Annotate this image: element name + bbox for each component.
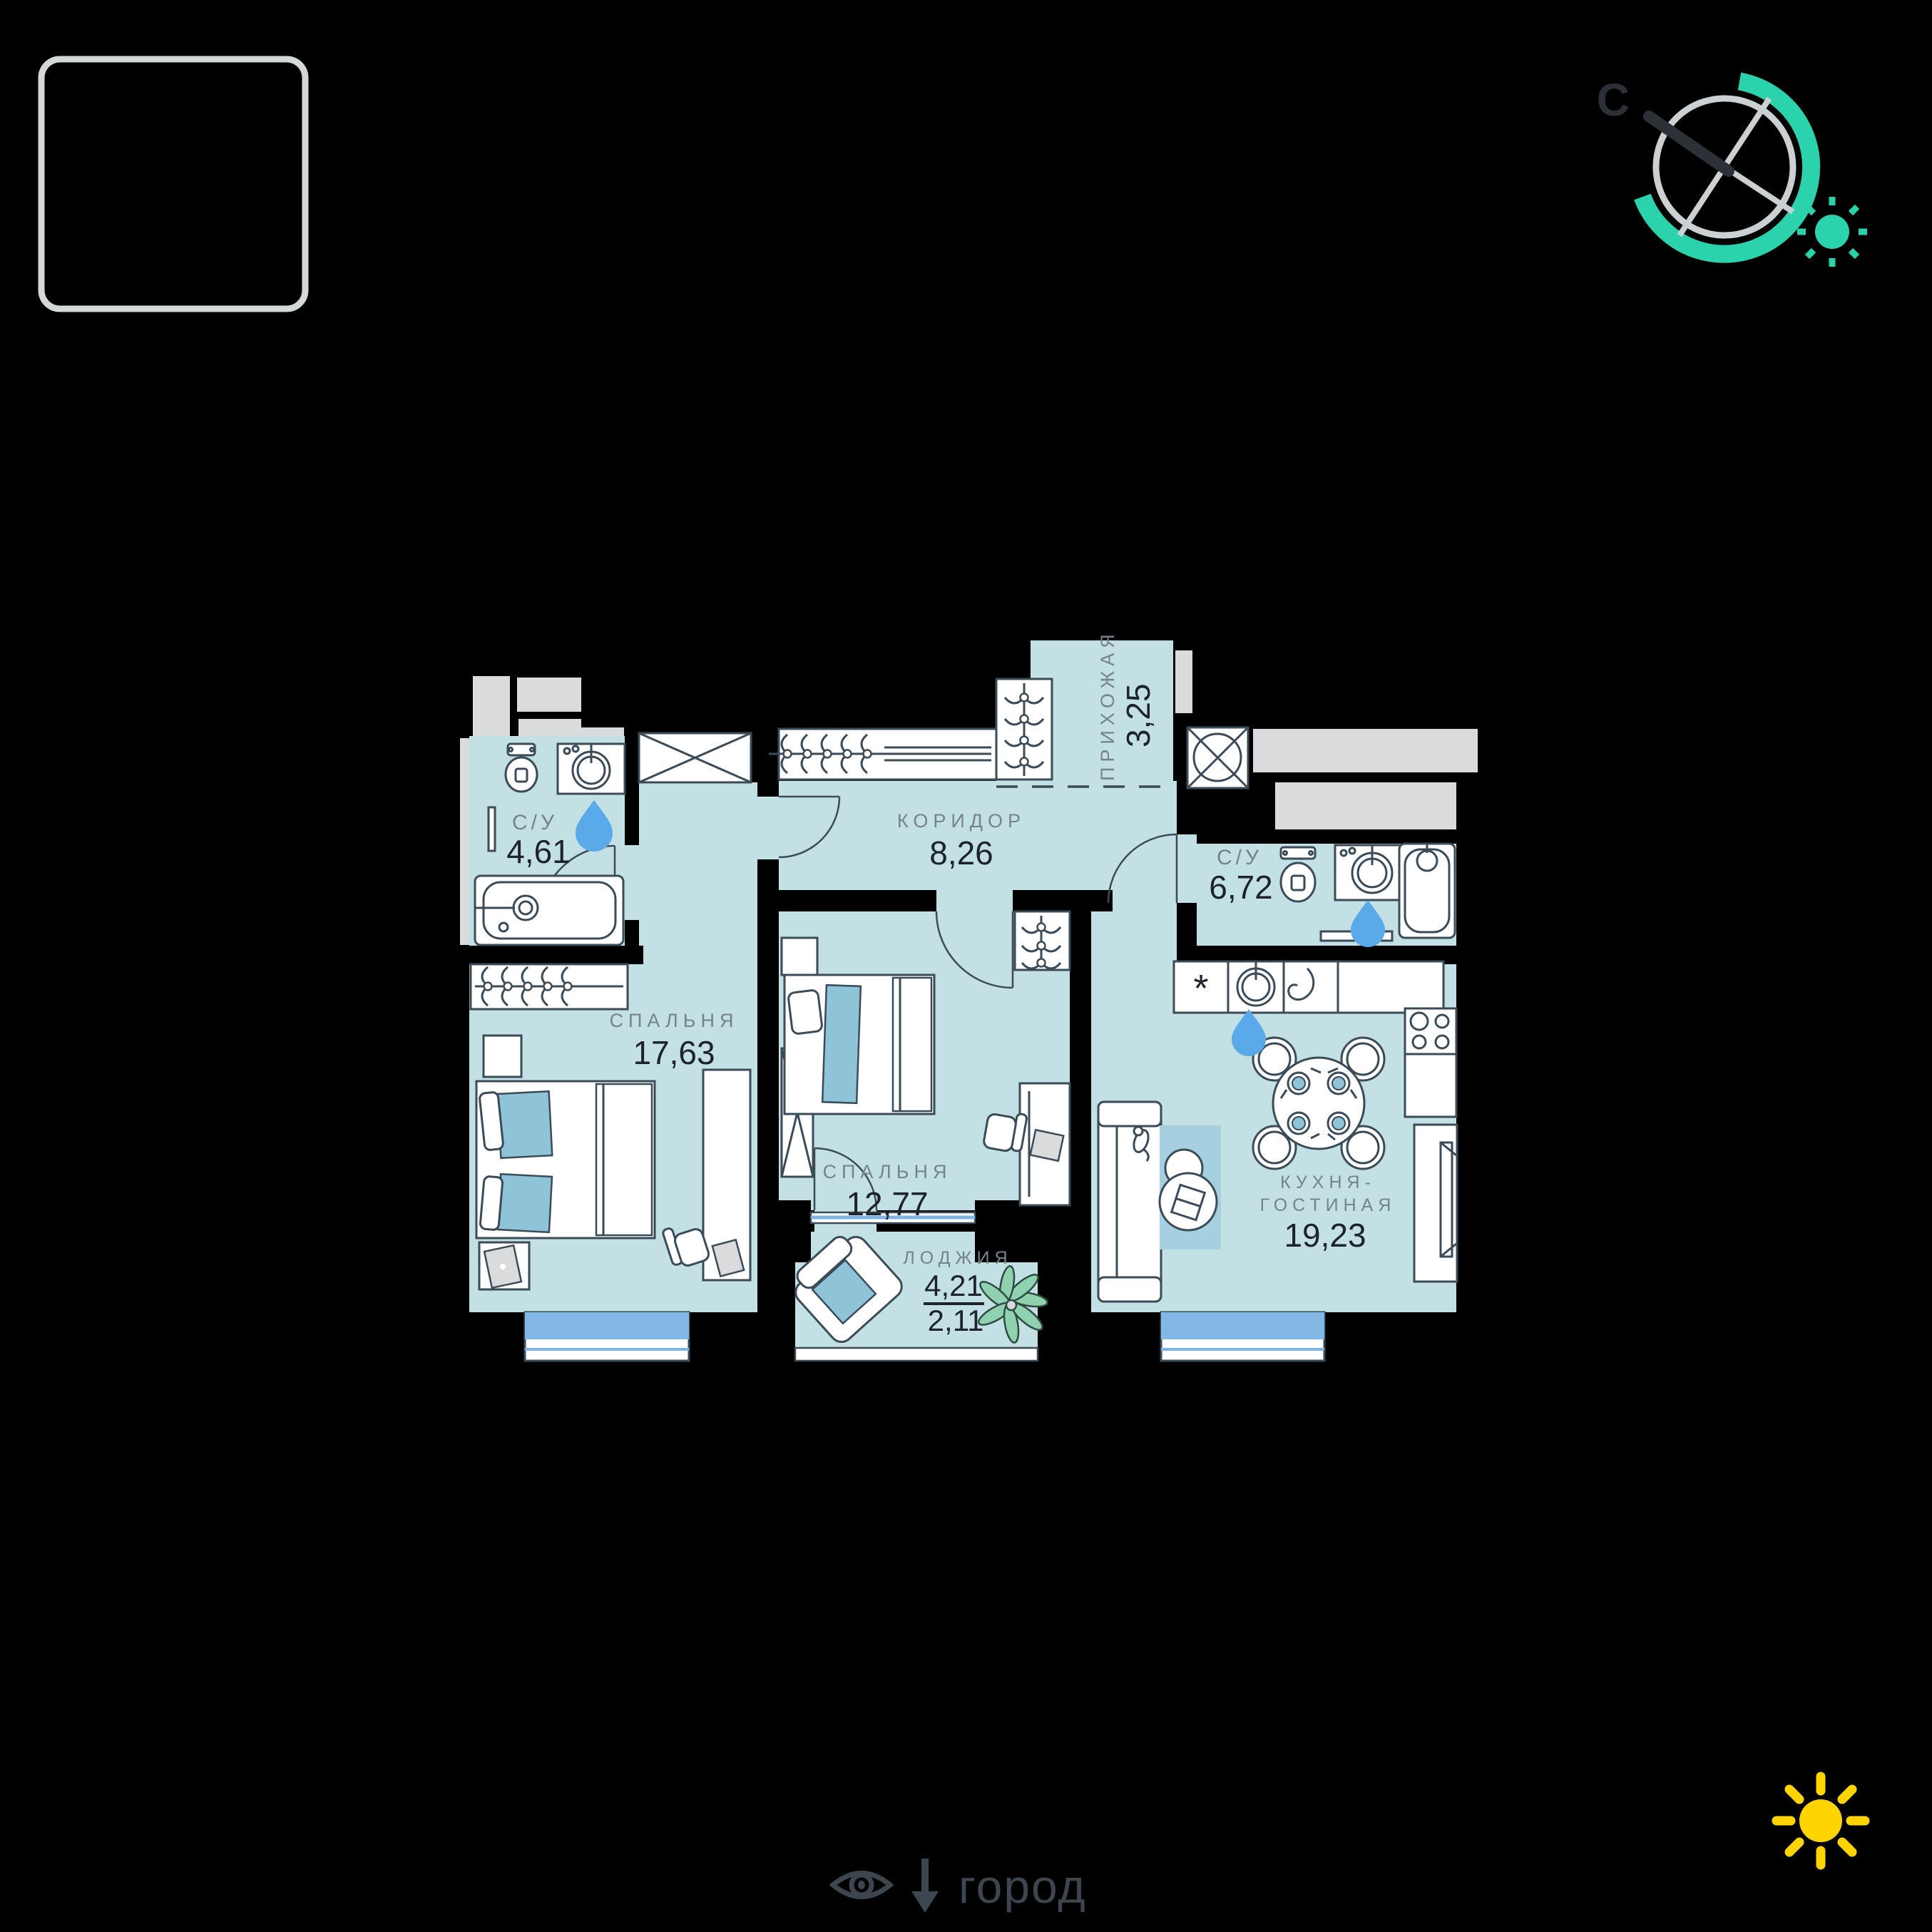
desk: [1020, 1083, 1070, 1205]
hall-name: ПРИХОЖАЯ: [1097, 629, 1118, 781]
toilet-icon: [506, 744, 537, 792]
bedroom1-name: СПАЛЬНЯ: [610, 1010, 739, 1031]
nightstand: [484, 1036, 521, 1077]
kitchen-name-line2: ГОСТИНАЯ: [1260, 1195, 1396, 1215]
bedroom1-doorway: [757, 797, 779, 859]
compass-north-label: С: [1597, 74, 1630, 126]
kitchen-counter: *: [1174, 961, 1443, 1013]
desk-chair-icon: [983, 1113, 1027, 1152]
floor-plan-canvas: С: [0, 0, 1932, 1932]
coffee-rug: [1160, 1125, 1221, 1249]
sofa-icon: [1098, 1102, 1161, 1302]
bathtub-icon: [1399, 844, 1455, 938]
corridor-closet: [769, 729, 996, 780]
bath2-doorway: [1177, 834, 1197, 903]
footer-view-label: город: [959, 1860, 1087, 1913]
toilet-icon: [1281, 847, 1315, 901]
bedroom1-wardrobe-box: [639, 733, 751, 782]
corridor-area: 8,26: [929, 834, 993, 872]
loggia-area-reduced: 2,11: [928, 1304, 984, 1337]
double-bed-icon: [476, 1081, 655, 1238]
bath2-area: 6,72: [1209, 869, 1273, 906]
kitchen-window: [1161, 1312, 1324, 1361]
corridor-name: КОРИДОР: [897, 810, 1026, 832]
counter-asterisk: *: [1193, 967, 1208, 1010]
hall-closet: [996, 679, 1052, 780]
rug: [479, 1242, 529, 1289]
bedroom1-area: 17,63: [633, 1034, 715, 1071]
bedroom2-name: СПАЛЬНЯ: [823, 1161, 952, 1182]
nightstand: [782, 938, 817, 975]
single-bed-icon: [784, 975, 934, 1114]
screenshot-root: С: [0, 0, 1932, 1932]
bedroom1-window: [525, 1312, 689, 1361]
bath1-doorway: [625, 845, 639, 920]
desk: [703, 1070, 750, 1280]
loggia-name: ЛОДЖИЯ: [903, 1248, 1012, 1268]
bedroom2-doorway: [936, 890, 1013, 911]
loggia-area-full: 4,21: [924, 1269, 983, 1302]
fridge-icon: [1414, 1125, 1457, 1282]
bedroom2-area: 12,77: [846, 1185, 928, 1222]
sun-icon: [1777, 1777, 1865, 1865]
sink-icon: [558, 744, 625, 794]
hall-area: 3,25: [1120, 683, 1157, 747]
bath2-name: С/У: [1217, 846, 1262, 869]
bedroom1-closet: [471, 964, 628, 1009]
bath1-name: С/У: [512, 811, 558, 834]
bath1-area: 4,61: [506, 833, 571, 870]
towel-rail: [489, 807, 495, 851]
sink-icon: [1335, 845, 1409, 900]
dining-set-icon: [1253, 1038, 1384, 1169]
kitchen-name-line1: КУХНЯ-: [1280, 1172, 1376, 1192]
stove-icon: [1405, 1008, 1456, 1117]
ventilation-shaft: [1187, 727, 1248, 788]
kitchen-area: 19,23: [1284, 1217, 1366, 1254]
bathtub-icon: [475, 876, 623, 945]
bedroom2-closet: [1015, 911, 1070, 970]
